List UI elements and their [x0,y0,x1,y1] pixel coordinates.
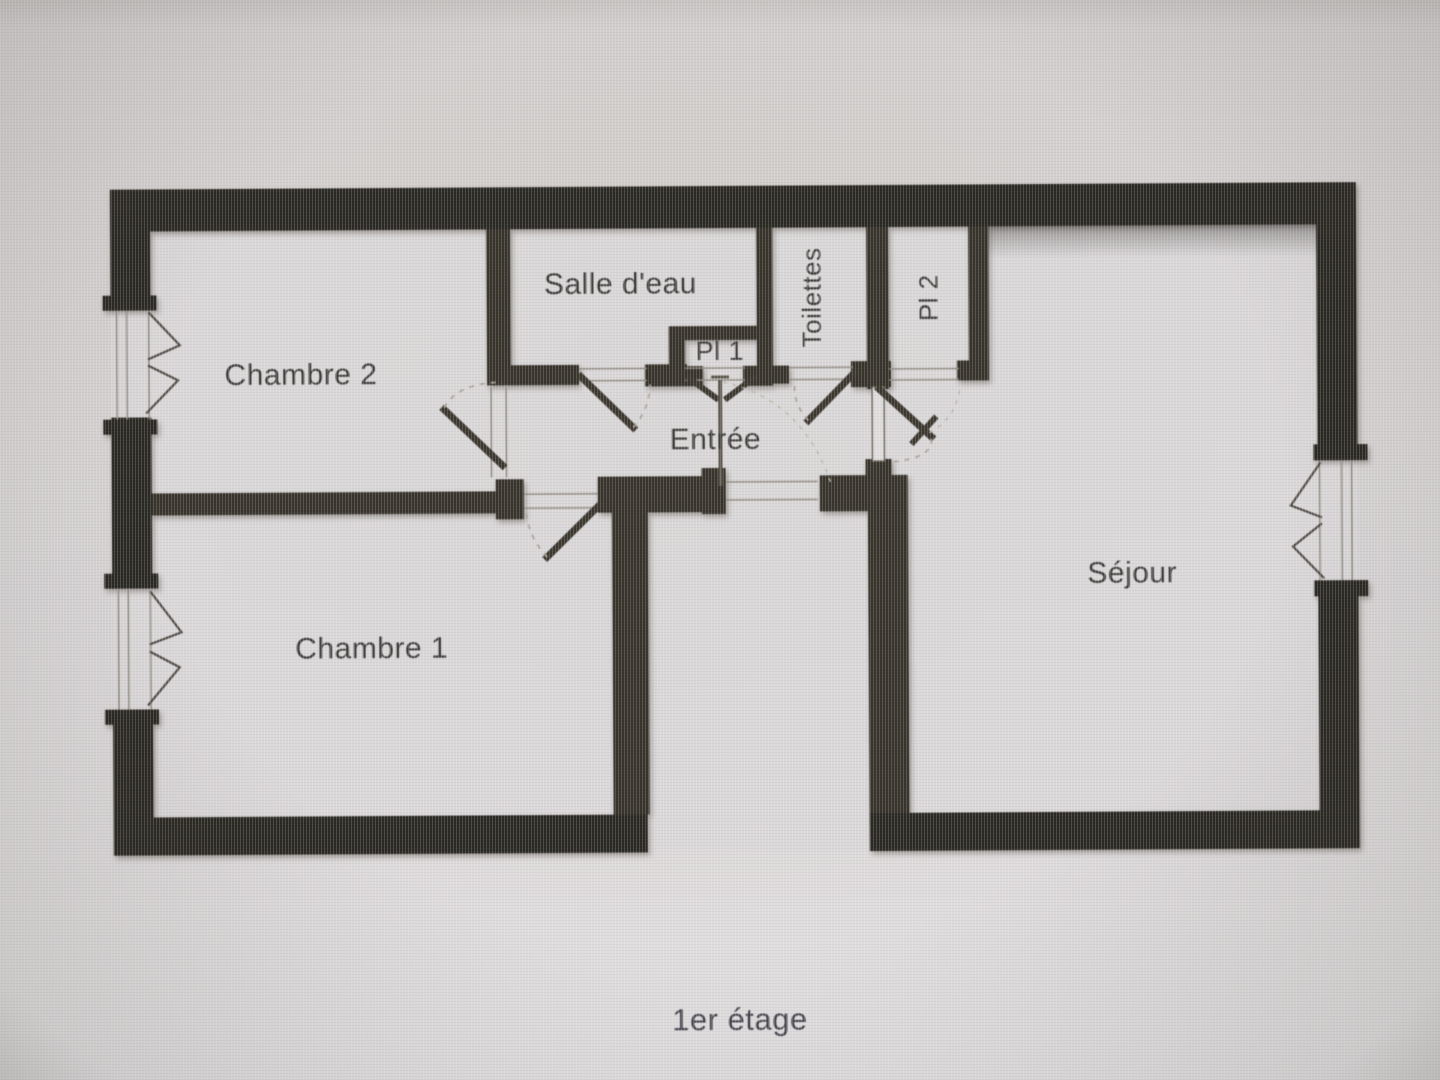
floor-caption: 1er étage [672,1001,808,1037]
room-label-chambre-1: Chambre 1 [295,632,448,666]
room-label-pl2: Pl 2 [913,274,943,321]
room-label-entree: Entrée [670,423,762,457]
room-label-sejour: Séjour [1087,556,1177,590]
wall-shadow [986,222,1318,258]
room-label-toilettes: Toilettes [796,247,827,347]
plan-background [110,182,1360,856]
room-label-salle-deau: Salle d'eau [544,267,697,301]
floor-plan: Chambre 2 Salle d'eau Pl 1 Toilettes Pl … [0,0,1440,1080]
room-label-chambre-2: Chambre 2 [224,358,377,392]
floor-plan-photo: Chambre 2 Salle d'eau Pl 1 Toilettes Pl … [0,0,1440,1080]
room-label-pl1: Pl 1 [695,336,744,366]
